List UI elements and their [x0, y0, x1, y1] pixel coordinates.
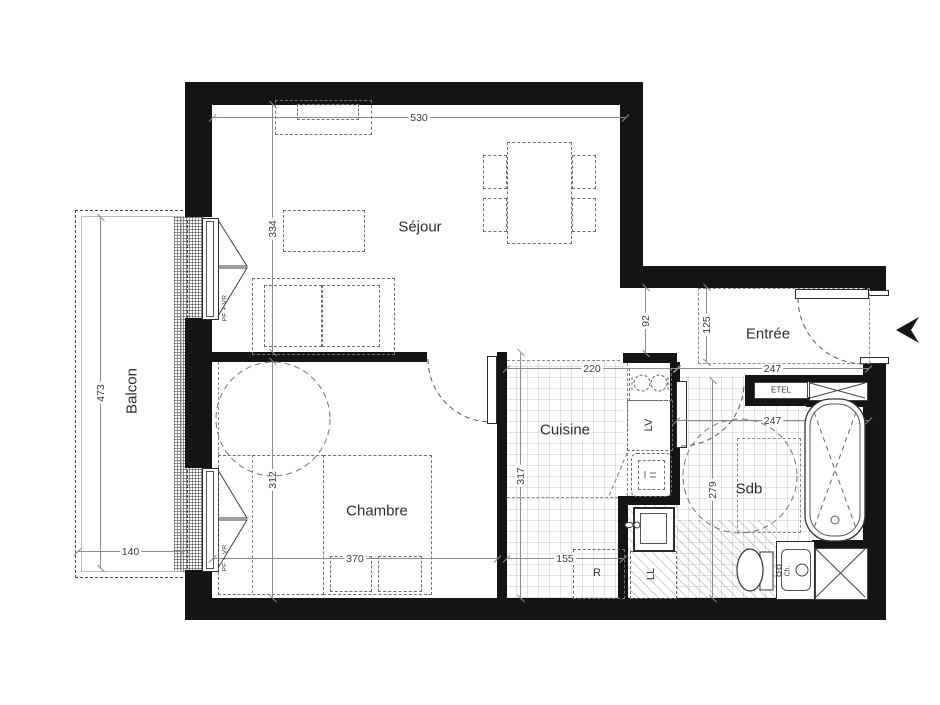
dim-balcon-length: 473 [100, 218, 101, 568]
wall-left-mid [185, 318, 212, 468]
dim-sejour-depth: 334 [272, 105, 273, 352]
window-sejour-frame [206, 221, 214, 317]
chair [572, 155, 596, 189]
dim-cuisine-lower-width: 155 [507, 558, 623, 559]
dim-passage-width: 92 [645, 288, 646, 353]
dim-sdb-depth: 279 [712, 381, 713, 598]
cooktop [629, 368, 672, 401]
etel-label: ETEL [771, 386, 791, 395]
dim-chambre-depth: 312 [272, 362, 273, 598]
wall-cuisine-top [623, 353, 677, 363]
dim-cuisine-width: 220 [507, 368, 677, 369]
floor-plan: Balcon PF + VR PF + VR [0, 0, 940, 705]
cuisine-zone-line [507, 360, 620, 361]
sofa-seat-right [322, 285, 380, 347]
cuisine-counter-line [507, 497, 618, 498]
dim-sejour-width: 530 [213, 117, 625, 118]
wall-top [185, 82, 643, 105]
dim-balcon-width: 140 [78, 551, 183, 552]
wall-bottom [185, 598, 886, 620]
chair [483, 198, 507, 232]
kitchen-sink-basin [638, 460, 665, 490]
duct-box-lower [815, 548, 868, 600]
wall-duct2-top [812, 540, 868, 548]
wall-sejour-right [620, 82, 643, 288]
wardrobe-divider [252, 455, 253, 593]
utility-sink-basin [640, 513, 667, 544]
chair [483, 155, 507, 189]
clearance-line [218, 362, 219, 455]
room-label-cuisine: Cuisine [540, 422, 590, 439]
fridge-label: R [593, 567, 601, 579]
water-heater-label: Ch. [785, 566, 792, 577]
dim-entree-depth: 125 [706, 288, 707, 362]
room-label-chambre: Chambre [346, 503, 408, 520]
chair [572, 198, 596, 232]
dim-chambre-width: 370 [213, 558, 497, 559]
dim-entree-width: 247 [677, 368, 868, 369]
sdb-door-leaf [676, 381, 687, 448]
wall-entree-top [620, 266, 886, 288]
wall-left-upper [185, 82, 212, 217]
room-label-balcon: Balcon [124, 368, 141, 414]
entry-arrow-icon [896, 317, 919, 343]
room-label-sdb: Sdb [736, 481, 763, 498]
dishwasher-label: LV [643, 419, 655, 432]
dim-sdb-width: 247 [677, 420, 868, 421]
duct-box-upper [809, 382, 868, 401]
room-label-sejour: Séjour [398, 219, 441, 236]
dining-table [507, 142, 572, 244]
window-sejour-label: PF + VR [222, 295, 229, 322]
dim-cuisine-depth: 317 [520, 353, 521, 598]
chambre-door-leaf [487, 356, 497, 424]
room-label-entree: Entrée [746, 326, 790, 343]
pillow [378, 556, 422, 592]
coffee-table [283, 210, 365, 252]
window-chambre-frame [206, 471, 214, 569]
wall-sdb-top [745, 375, 886, 382]
washing-machine-label: LL [645, 568, 657, 580]
